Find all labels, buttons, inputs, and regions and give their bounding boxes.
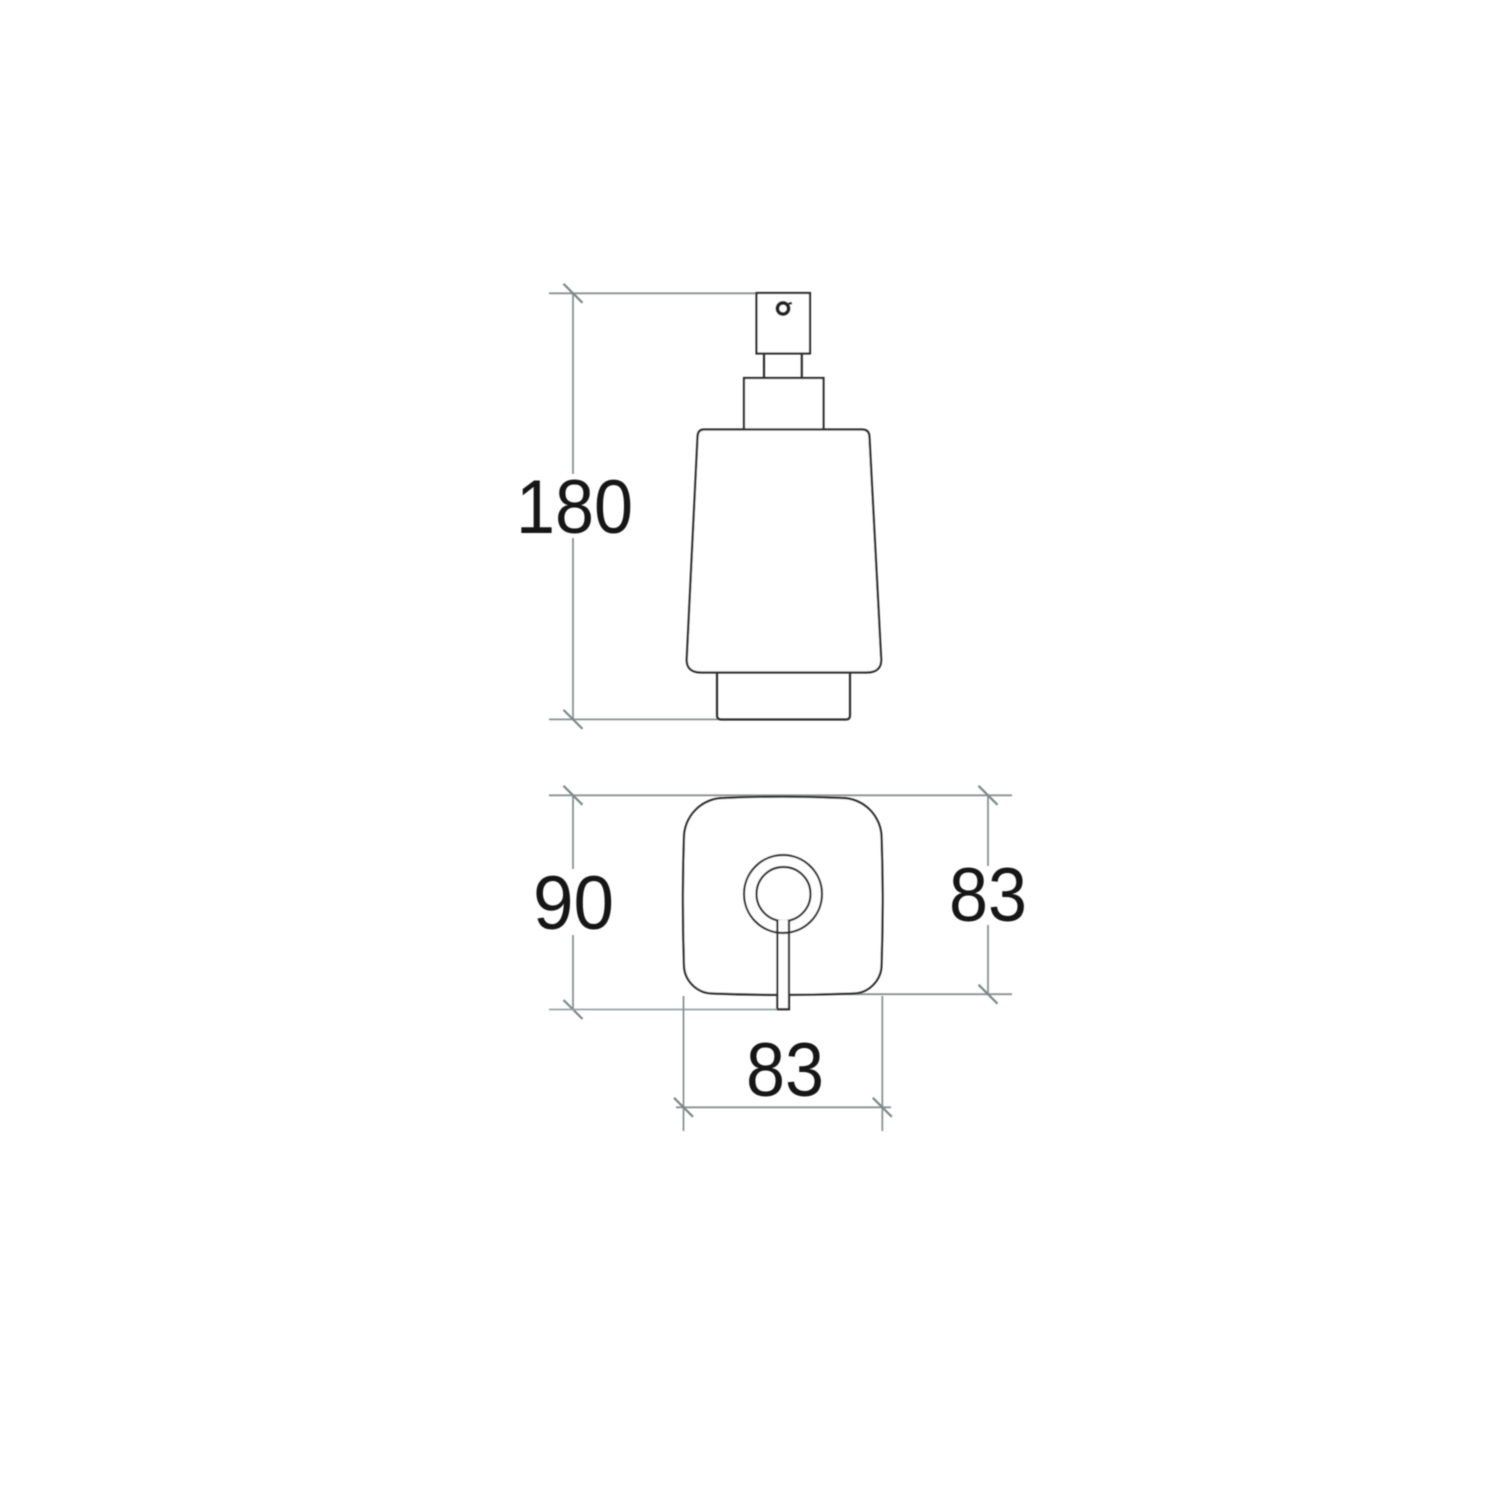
svg-text:83: 83 bbox=[746, 1028, 824, 1113]
svg-text:180: 180 bbox=[516, 465, 633, 550]
svg-text:83: 83 bbox=[949, 853, 1027, 938]
svg-text:90: 90 bbox=[533, 861, 614, 946]
